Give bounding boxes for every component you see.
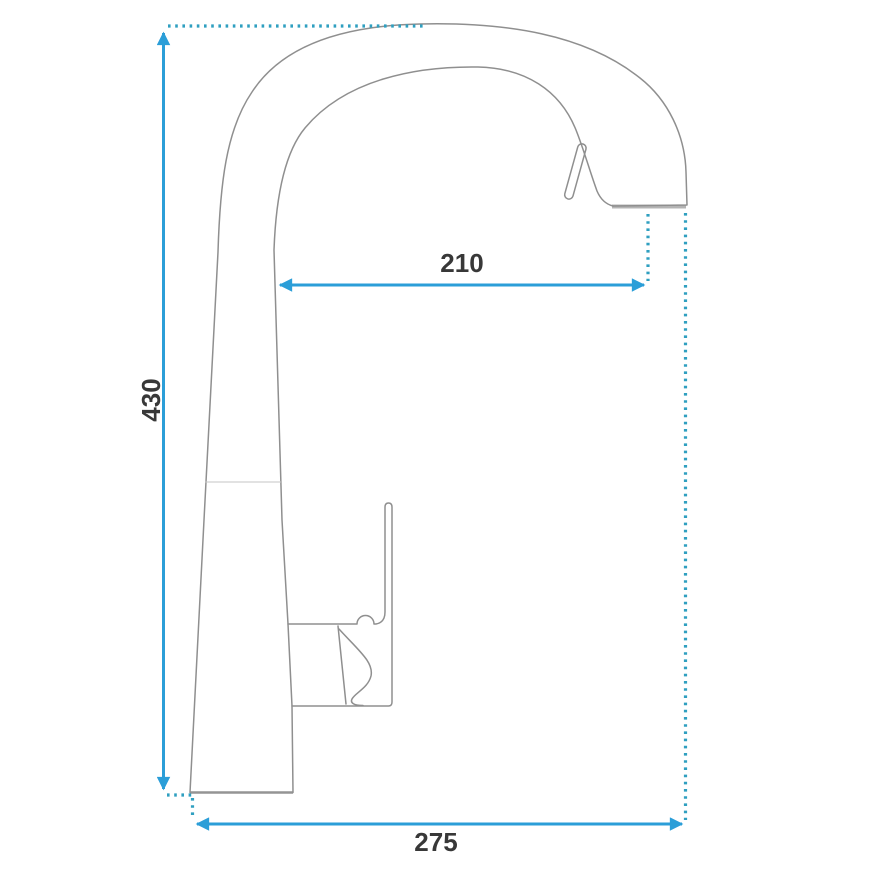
extension-lines bbox=[167, 26, 686, 820]
diagram-canvas: 430 210 275 bbox=[0, 0, 870, 870]
dimension-spout-reach-label: 210 bbox=[440, 248, 483, 278]
dimension-annotations: 430 210 275 bbox=[136, 26, 686, 857]
faucet-outline bbox=[190, 24, 687, 793]
dimension-base-width: 275 bbox=[197, 824, 682, 857]
faucet-dimension-svg: 430 210 275 bbox=[0, 0, 870, 870]
handle-seam-line bbox=[338, 626, 346, 704]
dimension-height-label: 430 bbox=[136, 378, 166, 421]
dimension-base-width-label: 275 bbox=[414, 827, 457, 857]
outline-outer bbox=[190, 24, 687, 793]
outline-inner bbox=[274, 67, 613, 793]
dimension-spout-reach: 210 bbox=[280, 248, 644, 285]
handle-lever bbox=[288, 503, 392, 706]
dimension-height: 430 bbox=[136, 33, 166, 789]
handle-squiggle bbox=[339, 629, 371, 706]
